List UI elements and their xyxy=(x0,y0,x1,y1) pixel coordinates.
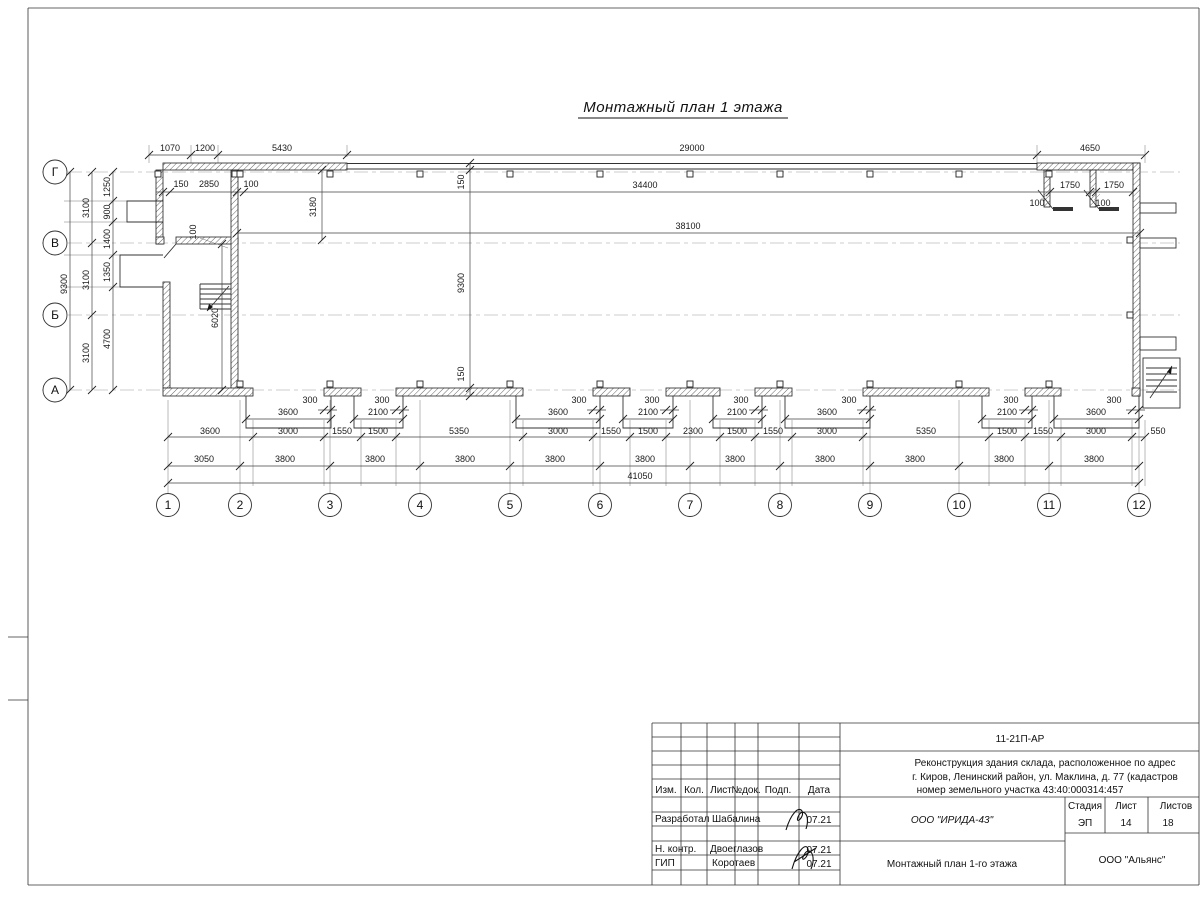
dim-label-total: 41050 xyxy=(627,471,652,481)
tb-project-line1: Реконструкция здания склада, расположенн… xyxy=(915,758,1176,769)
dim-label: 300 xyxy=(571,395,586,405)
tb-org: ООО "Альянс" xyxy=(1099,855,1166,866)
dim-label: 1250 xyxy=(102,177,112,197)
axis-label: В xyxy=(51,236,59,250)
axis-label: 2 xyxy=(237,498,244,512)
dim-label: 3800 xyxy=(545,454,565,464)
axis-grid-lines xyxy=(42,172,1180,493)
dim-label: 5350 xyxy=(449,426,469,436)
dim-label: 3000 xyxy=(1086,426,1106,436)
axis-label: 4 xyxy=(417,498,424,512)
tb-date-3: 07.21 xyxy=(806,859,831,870)
axis-label: Г xyxy=(52,165,59,179)
dim-label: 300 xyxy=(374,395,389,405)
dim-label: 3800 xyxy=(994,454,1014,464)
dim-label: 550 xyxy=(1150,426,1165,436)
tb-company: ООО "ИРИДА-43" xyxy=(911,815,994,826)
dim-label: 2100 xyxy=(997,407,1017,417)
dim-label: 34400 xyxy=(632,180,657,190)
tb-col-izm: Изм. xyxy=(655,785,676,796)
dimension-labels-top: 1070 1200 5430 29000 4650 150 2850 100 3… xyxy=(160,143,1124,231)
dim-label: 100 xyxy=(1095,198,1110,208)
tb-sheet-title: Монтажный план 1-го этажа xyxy=(887,859,1018,870)
interior-stair xyxy=(200,284,231,311)
dim-label: 2850 xyxy=(199,179,219,189)
axis-label: А xyxy=(51,383,59,397)
tb-doc-code: 11-21П-АР xyxy=(996,734,1045,745)
dim-label: 1550 xyxy=(1033,426,1053,436)
dim-label: 1750 xyxy=(1060,180,1080,190)
dim-label: 300 xyxy=(644,395,659,405)
column-markers xyxy=(155,171,1133,387)
dim-label: 900 xyxy=(102,204,112,219)
exterior-ramps xyxy=(1140,203,1176,350)
dim-label: 3800 xyxy=(365,454,385,464)
tb-project-line2: г. Киров, Ленинский район, ул. Маклина, … xyxy=(912,772,1178,783)
axis-label: 6 xyxy=(597,498,604,512)
dim-label: 5430 xyxy=(272,143,292,153)
dim-label: 100 xyxy=(188,224,198,239)
dim-label: 3180 xyxy=(308,197,318,217)
dimension-labels-gates: 3600 2100 3600 2100 2100 3600 2100 3600 … xyxy=(278,395,1122,417)
dim-label: 1550 xyxy=(601,426,621,436)
dim-label: 1500 xyxy=(368,426,388,436)
axis-label: 8 xyxy=(777,498,784,512)
tb-col-data: Дата xyxy=(808,785,831,796)
dim-label: 5350 xyxy=(916,426,936,436)
dim-label: 3100 xyxy=(81,343,91,363)
dim-label: 3000 xyxy=(817,426,837,436)
page-title: Монтажный план 1 этажа xyxy=(583,99,783,116)
drawing-title: Монтажный план 1 этажа xyxy=(578,99,788,118)
dim-label: 2100 xyxy=(368,407,388,417)
dimension-labels-bottom: 3600 3000 1550 1500 5350 3000 1550 1500 … xyxy=(194,426,1166,481)
axis-label: 9 xyxy=(867,498,874,512)
tb-stage-label: Стадия xyxy=(1068,801,1102,812)
dim-label: 300 xyxy=(1003,395,1018,405)
dim-label: 300 xyxy=(733,395,748,405)
dim-label: 29000 xyxy=(679,143,704,153)
dim-label: 3600 xyxy=(278,407,298,417)
dim-label: 3100 xyxy=(81,198,91,218)
tb-col-list: Лист xyxy=(710,785,732,796)
tb-date-2: 07.21 xyxy=(806,845,831,856)
axis-label: Б xyxy=(51,308,59,322)
dim-label: 3800 xyxy=(1084,454,1104,464)
dim-label: 38100 xyxy=(675,221,700,231)
tb-col-ndok: №док. xyxy=(731,785,760,796)
dim-label: 100 xyxy=(243,179,258,189)
tb-col-kol: Кол. xyxy=(684,785,704,796)
dim-label: 9300 xyxy=(456,273,466,293)
axis-label: 1 xyxy=(165,498,172,512)
axis-label: 5 xyxy=(507,498,514,512)
dimension-lines xyxy=(66,151,1149,487)
tb-sheets-value: 18 xyxy=(1162,818,1174,829)
dim-label: 150 xyxy=(456,174,466,189)
dim-label: 100 xyxy=(1029,198,1044,208)
dim-label: 1200 xyxy=(195,143,215,153)
dim-label: 300 xyxy=(841,395,856,405)
dim-label: 3800 xyxy=(815,454,835,464)
dim-label: 3000 xyxy=(278,426,298,436)
dim-label: 1070 xyxy=(160,143,180,153)
dim-label: 1750 xyxy=(1104,180,1124,190)
dim-label: 3800 xyxy=(635,454,655,464)
dim-label: 4650 xyxy=(1080,143,1100,153)
tb-role-3: ГИП xyxy=(655,858,675,869)
dim-label: 150 xyxy=(456,366,466,381)
dim-label: 2100 xyxy=(638,407,658,417)
dim-label: 9300 xyxy=(59,274,69,294)
dim-label: 3800 xyxy=(725,454,745,464)
dim-label: 300 xyxy=(1106,395,1121,405)
dim-label: 2300 xyxy=(683,426,703,436)
dim-label: 3800 xyxy=(455,454,475,464)
dim-label: 2100 xyxy=(727,407,747,417)
tb-sheets-label: Листов xyxy=(1160,801,1193,812)
dim-label: 3000 xyxy=(548,426,568,436)
sheet-frame xyxy=(8,8,1199,885)
tb-role-2: Н. контр. xyxy=(655,844,696,855)
axis-label: 12 xyxy=(1132,498,1146,512)
tb-name-1: Шабалина xyxy=(712,813,761,825)
tb-name-2: Двоеглазов xyxy=(710,844,763,855)
signature-1 xyxy=(786,809,807,830)
tb-role-1: Разработал xyxy=(655,813,710,825)
dim-label: 1500 xyxy=(997,426,1017,436)
axis-bubbles-bottom: 1 2 3 4 5 6 7 8 9 10 11 12 xyxy=(157,494,1151,517)
dim-label: 3600 xyxy=(548,407,568,417)
dim-label: 3600 xyxy=(200,426,220,436)
title-block: Изм. Кол. Лист №док. Подп. Дата Разработ… xyxy=(652,723,1199,885)
dim-label: 3800 xyxy=(275,454,295,464)
tb-sheet-value: 14 xyxy=(1120,818,1132,829)
tb-name-3: Коротаев xyxy=(712,858,755,869)
tb-date-1: 07.21 xyxy=(806,815,831,826)
dim-label: 150 xyxy=(173,179,188,189)
dim-label: 3050 xyxy=(194,454,214,464)
floor-plan-walls xyxy=(156,163,1140,396)
signature-2 xyxy=(792,847,816,869)
dim-label: 3800 xyxy=(905,454,925,464)
dim-label: 1500 xyxy=(638,426,658,436)
dim-label: 3600 xyxy=(1086,407,1106,417)
dim-label: 300 xyxy=(302,395,317,405)
axis-label: 10 xyxy=(952,498,966,512)
dim-label: 1550 xyxy=(763,426,783,436)
exterior-stair xyxy=(1143,358,1180,408)
axis-label: 7 xyxy=(687,498,694,512)
axis-label: 11 xyxy=(1043,498,1056,512)
dim-label: 1400 xyxy=(102,229,112,249)
dim-label: 1350 xyxy=(102,262,112,282)
dim-label: 4700 xyxy=(102,329,112,349)
tb-sheet-label: Лист xyxy=(1115,801,1137,812)
dim-label: 1550 xyxy=(332,426,352,436)
dim-label: 3600 xyxy=(817,407,837,417)
tb-stage-value: ЭП xyxy=(1078,818,1092,829)
axis-label: 3 xyxy=(327,498,334,512)
dim-label: 3100 xyxy=(81,270,91,290)
tb-col-podp: Подп. xyxy=(765,785,792,796)
drawing-sheet: Монтажный план 1 этажа xyxy=(0,0,1200,900)
tb-project-line3: номер земельного участка 43:40:000314:45… xyxy=(917,785,1124,796)
dim-label: 6020 xyxy=(210,308,220,328)
dim-label: 1500 xyxy=(727,426,747,436)
